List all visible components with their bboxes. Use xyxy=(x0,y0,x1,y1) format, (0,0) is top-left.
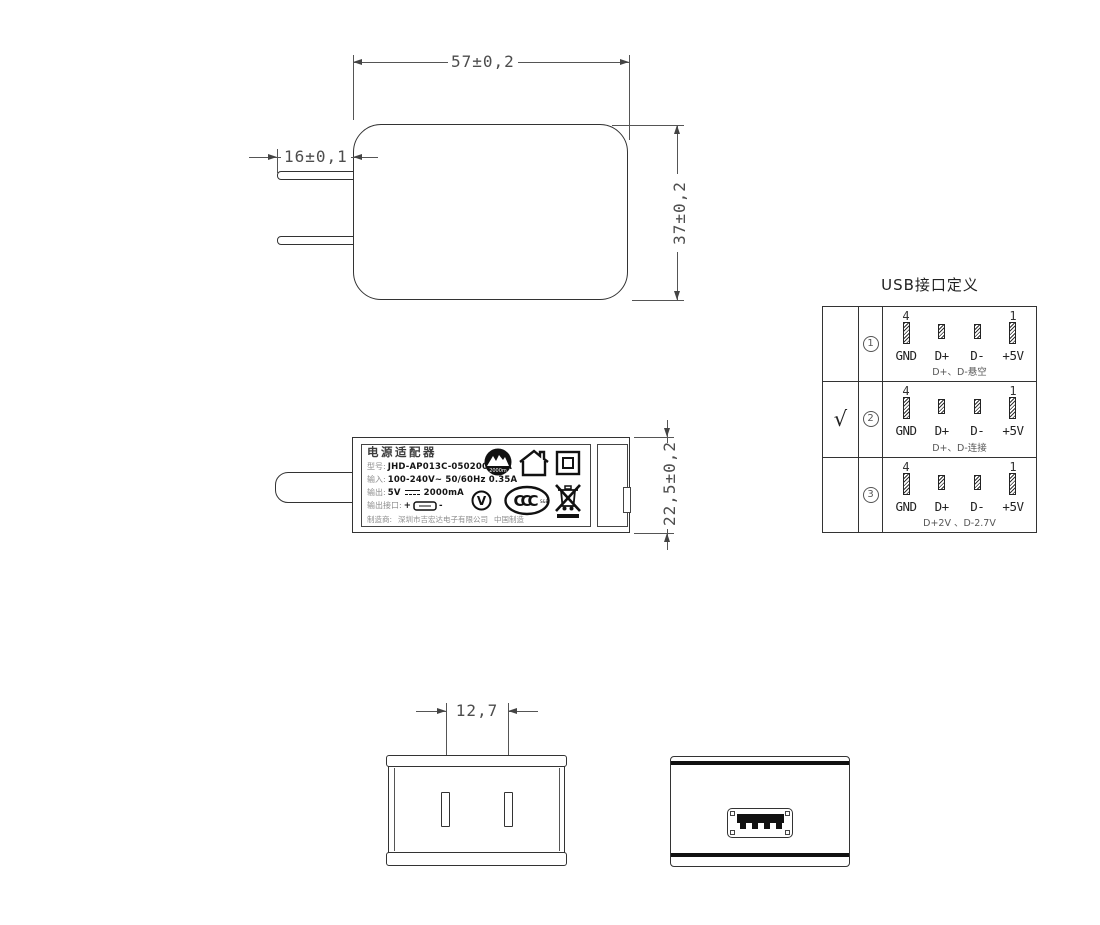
pin-number: 1 xyxy=(1009,385,1016,397)
pin-contact-icon xyxy=(974,324,981,339)
dim-side-arrow-bottom xyxy=(664,533,670,542)
indoor-use-only-icon xyxy=(517,448,551,477)
pin-label: +5V xyxy=(1002,424,1023,437)
row2-index-cell: 2 xyxy=(859,382,883,456)
svg-text:S&E: S&E xyxy=(540,499,549,504)
dim-prong-text: 16±0,1 xyxy=(281,149,351,165)
input-label: 输入: xyxy=(367,475,386,485)
pin-contact-icon xyxy=(903,397,910,419)
usb-port-outline xyxy=(727,808,793,838)
pin-number: 1 xyxy=(1009,461,1016,473)
usb-port-corner-bl xyxy=(730,830,735,835)
pin-contact-icon xyxy=(974,399,981,414)
dim-width-ext-right xyxy=(629,55,630,140)
svg-text:2000m: 2000m xyxy=(489,468,507,474)
pin-unit-dminus: D- xyxy=(960,385,994,437)
output-current: 2000mA xyxy=(424,488,464,498)
pin-unit-dplus: D+ xyxy=(925,385,959,437)
bottom-view-body xyxy=(388,766,565,853)
circled-number: 3 xyxy=(863,487,879,503)
usb-pinout-table: 1 4 GND D+ xyxy=(822,306,1037,533)
weee-bin-icon xyxy=(554,482,582,520)
dim-height-arrow-top xyxy=(674,125,680,134)
side-plug-barrel xyxy=(275,472,354,503)
side-usb-notch xyxy=(623,487,631,513)
class-ii-icon xyxy=(555,450,581,476)
svg-text:V: V xyxy=(477,494,487,508)
pin-label: D+ xyxy=(935,424,949,437)
label-port-line: 输出接口: + - xyxy=(367,501,443,511)
pin-unit-5v: 1 +5V xyxy=(996,461,1030,513)
pin-unit-5v: 1 +5V xyxy=(996,310,1030,362)
pin-unit-dplus: D+ xyxy=(925,310,959,362)
usb-port-contact-3 xyxy=(764,822,770,829)
pin-contact-icon xyxy=(938,399,945,414)
pin-contact-icon xyxy=(938,475,945,490)
label-maker-line: 制造商: 深圳市吉宏达电子有限公司 中国制造 xyxy=(367,515,524,525)
pin-contact-icon xyxy=(974,475,981,490)
dim-side-text: 22,5±0,2 xyxy=(662,443,678,529)
usb-face-bottom-band xyxy=(671,853,849,857)
port-minus: - xyxy=(439,501,443,511)
pin-unit-5v: 1 +5V xyxy=(996,385,1030,437)
dim-width-arrow-left xyxy=(353,59,362,65)
dim-width-text: 57±0,2 xyxy=(448,54,518,70)
pin-contact-icon xyxy=(903,473,910,495)
pin-label: GND xyxy=(895,349,916,362)
dim-height-arrow-bottom xyxy=(674,291,680,300)
made-in: 中国制造 xyxy=(494,515,524,525)
table-row: 3 4 GND D+ xyxy=(823,458,1036,532)
pin-number: 4 xyxy=(902,385,909,397)
usb-face-top-band xyxy=(671,761,849,765)
pins-row: 4 GND D+ D- 1 xyxy=(889,385,1030,441)
usb-port-corner-tl xyxy=(730,811,735,816)
bottom-view-inner-wall-left xyxy=(394,768,395,851)
label-title-line: 电源适配器 xyxy=(367,447,437,457)
row3-check-cell xyxy=(823,458,859,532)
efficiency-level-icon: V xyxy=(471,490,492,511)
pin-unit-dplus: D+ xyxy=(925,461,959,513)
svg-text:CCC: CCC xyxy=(513,492,538,510)
pin-unit-dminus: D- xyxy=(960,461,994,513)
pin-contact-icon xyxy=(938,324,945,339)
ccc-mark-icon: CCC S&E xyxy=(504,485,551,516)
pins-row: 4 GND D+ D- 1 xyxy=(889,310,1030,366)
pin-label: D- xyxy=(970,424,984,437)
row3-index-cell: 3 xyxy=(859,458,883,532)
pin-unit-gnd: 4 GND xyxy=(889,310,923,362)
pin-label: D+ xyxy=(935,349,949,362)
row1-pins-cell: 4 GND D+ D- 1 xyxy=(883,307,1036,381)
usb-connector-icon xyxy=(413,501,437,511)
pin-contact-icon xyxy=(1009,322,1016,344)
row1-note: D+、D-悬空 xyxy=(889,366,1030,379)
dim-spacing-arrow-right xyxy=(508,708,517,714)
bottom-prong-left xyxy=(441,792,450,827)
usb-port-corner-tr xyxy=(785,811,790,816)
pin-contact-icon xyxy=(1009,397,1016,419)
pin-label: +5V xyxy=(1002,349,1023,362)
pin-number: 4 xyxy=(902,310,909,322)
output-label: 输出: xyxy=(367,488,386,498)
dim-prong-tick xyxy=(277,149,278,173)
dim-prong-arrow-right xyxy=(353,154,362,160)
front-view-body xyxy=(353,124,628,300)
side-usb-end-section xyxy=(597,444,628,527)
bottom-view-bottom-strip xyxy=(386,852,567,866)
model-label: 型号: xyxy=(367,462,386,472)
label-output-line: 输出: 5V 2000mA xyxy=(367,488,464,498)
row2-note: D+、D-连接 xyxy=(889,442,1030,455)
row1-check-cell xyxy=(823,307,859,381)
dim-height-ext-bottom xyxy=(632,300,684,301)
dim-spacing-arrow-left xyxy=(437,708,446,714)
table-row: 1 4 GND D+ xyxy=(823,307,1036,382)
pin-unit-gnd: 4 GND xyxy=(889,385,923,437)
output-voltage: 5V xyxy=(388,488,401,498)
pin-label: GND xyxy=(895,424,916,437)
dim-side-ext-top xyxy=(634,437,674,438)
front-prong-lower xyxy=(277,236,354,245)
dim-prong-arrow-left xyxy=(268,154,277,160)
bottom-prong-right xyxy=(504,792,513,827)
pin-number: 4 xyxy=(902,461,909,473)
front-prong-upper xyxy=(277,171,354,180)
label-title: 电源适配器 xyxy=(367,447,437,457)
usb-port-contact-2 xyxy=(752,822,758,829)
pin-label: D- xyxy=(970,349,984,362)
usb-port-corner-br xyxy=(785,830,790,835)
dim-side-arrow-top xyxy=(664,428,670,437)
pin-label: GND xyxy=(895,500,916,513)
pins-row: 4 GND D+ D- 1 xyxy=(889,461,1030,517)
pin-unit-dminus: D- xyxy=(960,310,994,362)
circled-number: 1 xyxy=(863,336,879,352)
usb-table-title: USB接口定义 xyxy=(840,274,1020,295)
row2-check-cell: √ xyxy=(823,382,859,456)
usb-port-contact-1 xyxy=(740,822,746,829)
dc-symbol-icon xyxy=(405,489,420,497)
drawing-canvas: 57±0,2 37±0,2 16±0,1 电源适配器 型号: JHD-AP013… xyxy=(0,0,1100,925)
usb-port-contact-4 xyxy=(776,822,782,829)
row1-index-cell: 1 xyxy=(859,307,883,381)
row2-pins-cell: 4 GND D+ D- 1 xyxy=(883,382,1036,456)
altitude-2000m-icon: 2000m xyxy=(483,447,513,477)
bottom-view-inner-wall-right xyxy=(559,768,560,851)
dim-height-text: 37±0,2 xyxy=(672,174,688,252)
dim-spacing-text: 12,7 xyxy=(455,703,499,719)
circled-number: 2 xyxy=(863,411,879,427)
port-plus: + xyxy=(404,501,411,511)
maker-label: 制造商: xyxy=(367,515,392,525)
pin-label: D- xyxy=(970,500,984,513)
row3-note: D+2V 、D-2.7V xyxy=(889,517,1030,530)
row3-pins-cell: 4 GND D+ D- 1 xyxy=(883,458,1036,532)
port-label: 输出接口: xyxy=(367,501,402,511)
pin-contact-icon xyxy=(903,322,910,344)
maker-value: 深圳市吉宏达电子有限公司 xyxy=(398,515,488,525)
pin-number: 1 xyxy=(1009,310,1016,322)
rating-label: 电源适配器 型号: JHD-AP013C-050200BB-A 输入: 100-… xyxy=(361,444,591,527)
pin-label: +5V xyxy=(1002,500,1023,513)
dim-width-arrow-right xyxy=(620,59,629,65)
pin-contact-icon xyxy=(1009,473,1016,495)
table-row: √ 2 4 GND D+ xyxy=(823,382,1036,457)
pin-unit-gnd: 4 GND xyxy=(889,461,923,513)
pin-label: D+ xyxy=(935,500,949,513)
